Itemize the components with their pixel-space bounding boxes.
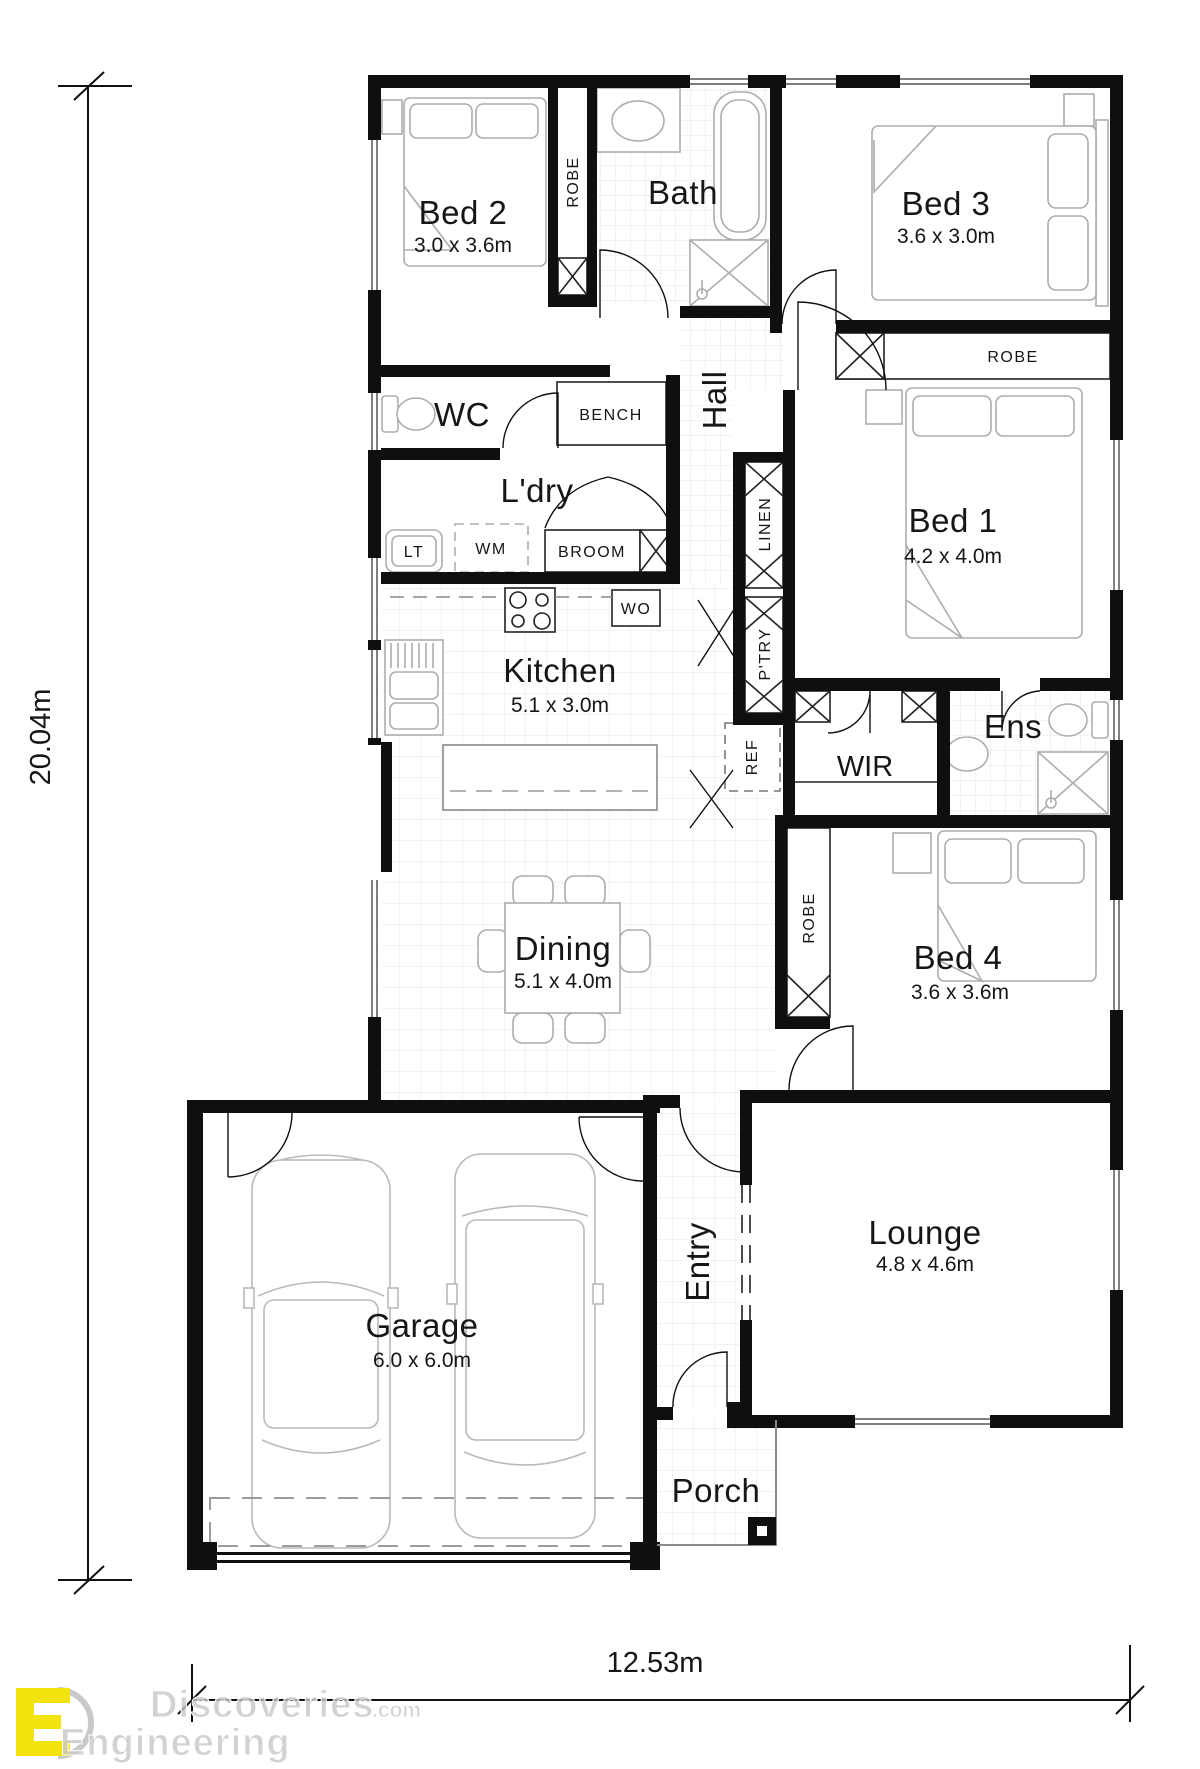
watermark: Discoveries .com Engineering bbox=[16, 1684, 421, 1764]
room-label-wc: WC bbox=[434, 396, 490, 433]
bed3-door bbox=[782, 270, 836, 324]
room-size-bed1: 4.2 x 4.0m bbox=[904, 545, 1002, 568]
bath-basin-icon bbox=[597, 88, 680, 152]
room-label-kitchen: Kitchen bbox=[503, 652, 617, 689]
label-bench: BENCH bbox=[579, 407, 643, 424]
room-label-lounge: Lounge bbox=[868, 1214, 981, 1251]
robe-bed2-box bbox=[558, 258, 587, 295]
room-label-entry: Entry bbox=[679, 1222, 716, 1302]
wc-door bbox=[503, 393, 558, 448]
bed4-door bbox=[789, 1026, 853, 1090]
wir-door bbox=[828, 691, 870, 733]
label-pantry: P'TRY bbox=[757, 628, 774, 681]
room-label-ens: Ens bbox=[984, 708, 1042, 745]
label-robe-bed3: ROBE bbox=[987, 349, 1038, 366]
room-label-porch: Porch bbox=[672, 1472, 761, 1509]
room-size-garage: 6.0 x 6.0m bbox=[373, 1349, 471, 1372]
ens-basin-icon bbox=[946, 737, 988, 771]
watermark-suffix: .com bbox=[372, 1699, 421, 1722]
room-label-hall: Hall bbox=[696, 371, 733, 430]
dim-label-left: 20.04m bbox=[25, 689, 57, 786]
label-wm: WM bbox=[475, 541, 506, 558]
robe-bed3-box bbox=[836, 333, 1110, 379]
room-size-lounge: 4.8 x 4.6m bbox=[876, 1253, 974, 1276]
floor-plan-drawing: Bed 2 3.0 x 3.6m Bath Bed 3 3.6 x 3.0m W… bbox=[0, 0, 1200, 1769]
room-size-bed3: 3.6 x 3.0m bbox=[897, 225, 995, 248]
room-size-bed4: 3.6 x 3.6m bbox=[911, 981, 1009, 1004]
bathtub-icon bbox=[714, 92, 766, 240]
label-lt: LT bbox=[404, 544, 424, 561]
label-robe-bed2: ROBE bbox=[565, 156, 582, 207]
watermark-line2: Engineering bbox=[60, 1722, 291, 1764]
wc-toilet-icon bbox=[382, 396, 435, 432]
ens-toilet-icon bbox=[1049, 702, 1108, 738]
room-label-ldry: L'dry bbox=[501, 472, 574, 509]
room-label-bed1: Bed 1 bbox=[909, 502, 998, 539]
label-wo: WO bbox=[621, 601, 652, 618]
room-label-bed3: Bed 3 bbox=[902, 185, 991, 222]
label-ref: REF bbox=[744, 739, 761, 776]
kitchen-sink-icon bbox=[385, 640, 443, 735]
dim-label-bottom: 12.53m bbox=[607, 1647, 704, 1679]
room-size-bed2: 3.0 x 3.6m bbox=[414, 234, 512, 257]
ens-shower-icon bbox=[1038, 752, 1108, 814]
room-label-bed2: Bed 2 bbox=[419, 194, 508, 231]
room-label-wir: WIR bbox=[837, 751, 893, 783]
label-linen: LINEN bbox=[757, 497, 774, 552]
room-label-bed4: Bed 4 bbox=[914, 939, 1003, 976]
room-label-garage: Garage bbox=[365, 1307, 478, 1344]
room-size-kitchen: 5.1 x 3.0m bbox=[511, 694, 609, 717]
label-broom: BROOM bbox=[558, 544, 626, 561]
room-label-dining: Dining bbox=[515, 930, 612, 967]
label-robe-bed4: ROBE bbox=[801, 892, 818, 943]
floor-plan-page: Bed 2 3.0 x 3.6m Bath Bed 3 3.6 x 3.0m W… bbox=[0, 0, 1200, 1769]
watermark-brand: Discoveries bbox=[150, 1684, 374, 1726]
bath-shower-icon bbox=[690, 240, 768, 306]
stove-icon bbox=[505, 588, 555, 632]
room-size-dining: 5.1 x 4.0m bbox=[514, 970, 612, 993]
kitchen-island bbox=[443, 745, 657, 810]
room-label-bath: Bath bbox=[648, 174, 718, 211]
car-icon bbox=[447, 1154, 603, 1538]
